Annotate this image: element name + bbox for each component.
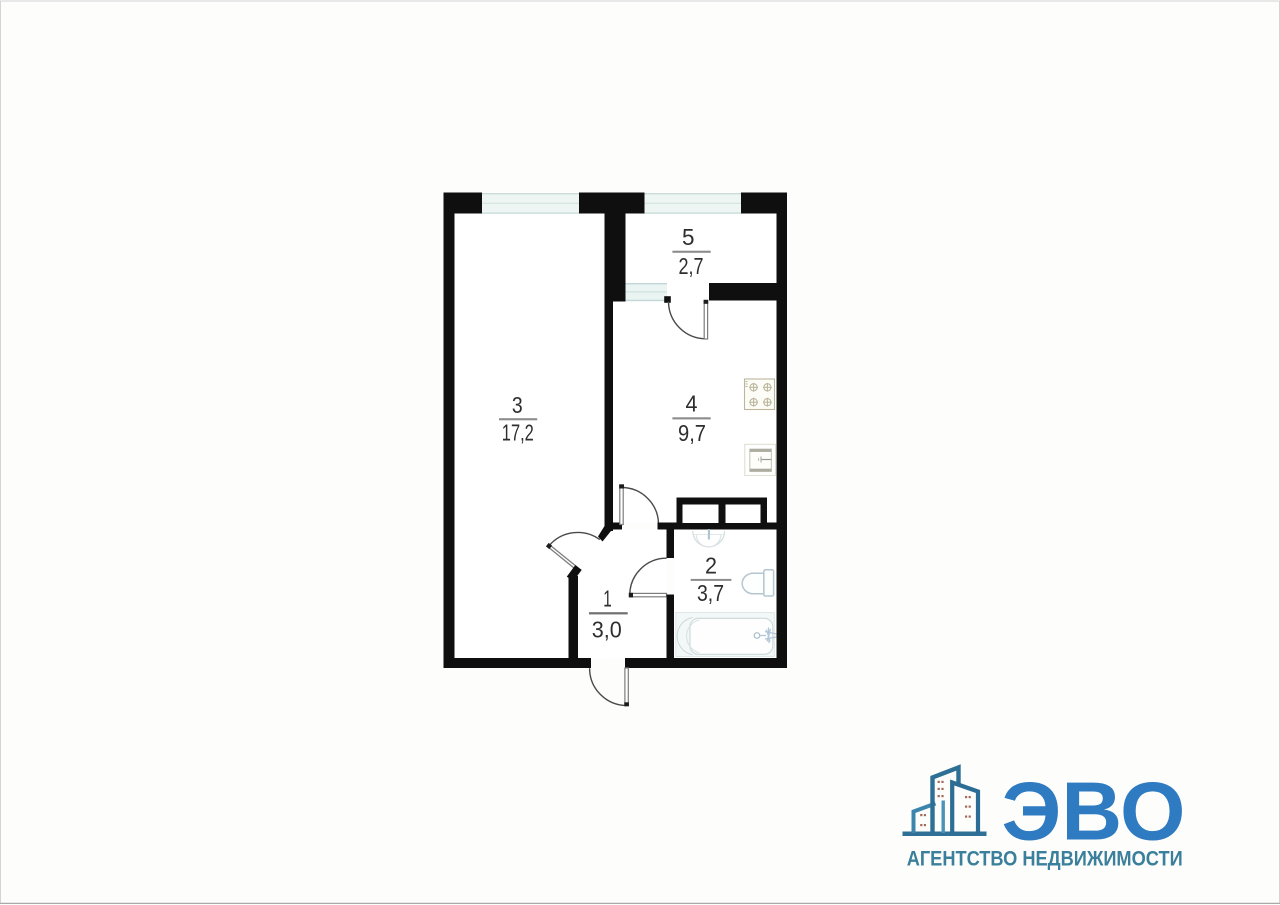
svg-text:5: 5	[682, 224, 695, 250]
svg-text:АГЕНТСТВО НЕДВИЖИМОСТИ: АГЕНТСТВО НЕДВИЖИМОСТИ	[907, 847, 1183, 871]
svg-text:2: 2	[705, 553, 717, 579]
svg-text:1: 1	[603, 585, 612, 611]
svg-text:3,7: 3,7	[697, 580, 724, 606]
svg-text:3,0: 3,0	[592, 617, 622, 643]
svg-text:4: 4	[686, 391, 698, 417]
svg-text:3: 3	[512, 392, 523, 418]
svg-text:2,7: 2,7	[679, 253, 704, 279]
svg-text:17,2: 17,2	[502, 420, 534, 446]
svg-text:9,7: 9,7	[678, 420, 706, 446]
svg-text:ЭВО: ЭВО	[1002, 765, 1186, 858]
